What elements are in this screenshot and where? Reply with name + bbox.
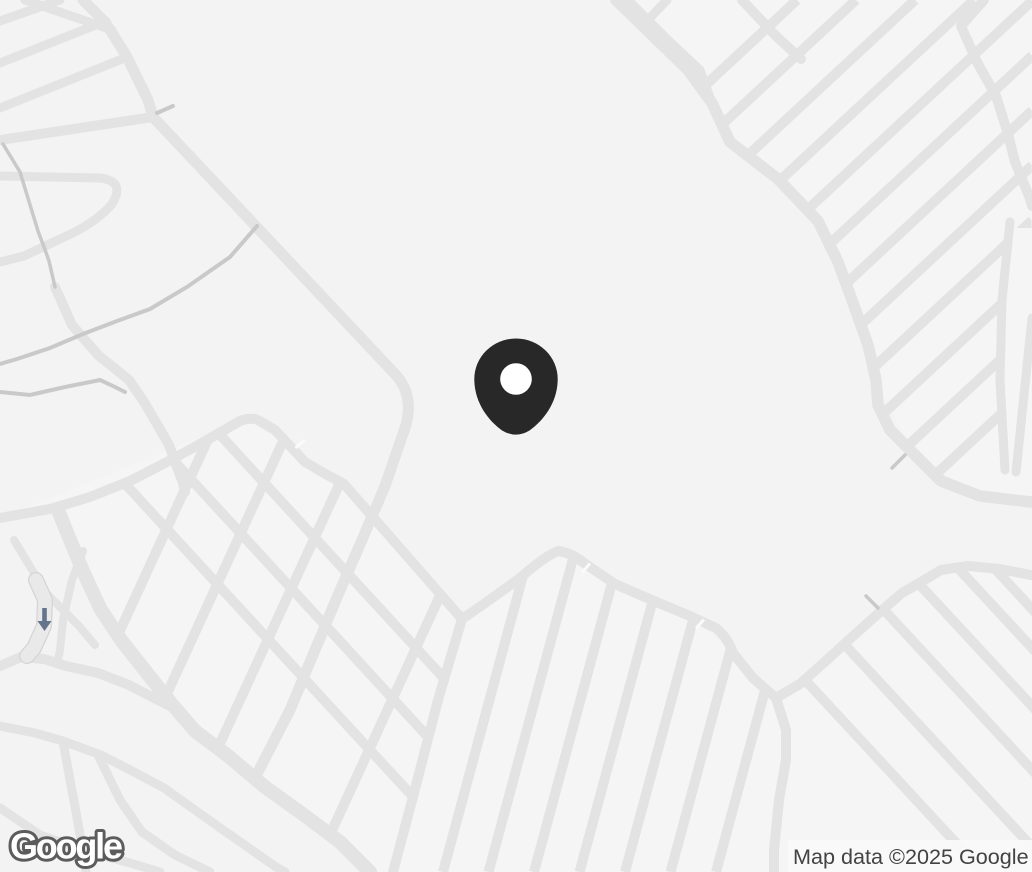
svg-text:Map data ©2025 Google: Map data ©2025 Google [793,844,1029,869]
svg-text:Google: Google [10,826,122,867]
